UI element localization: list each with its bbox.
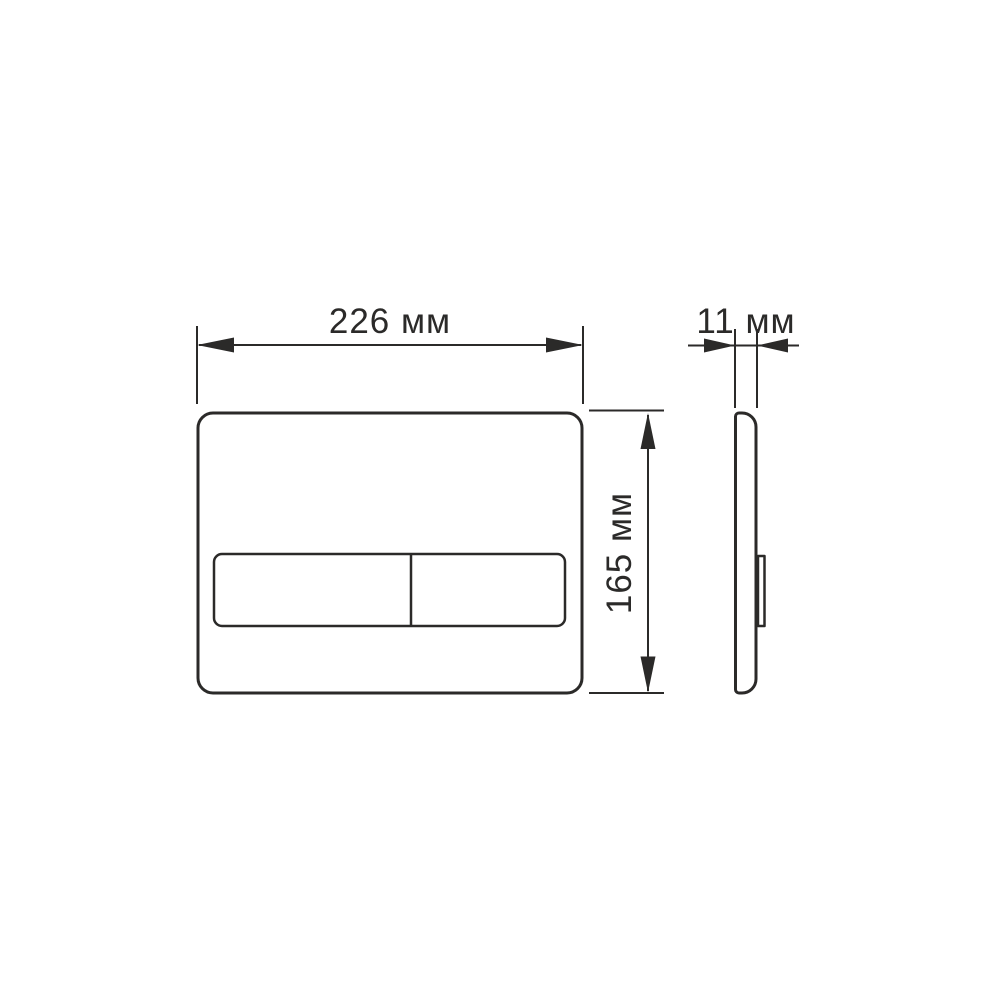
side-view <box>736 413 765 693</box>
width-dimension-label: 226 мм <box>329 302 451 341</box>
height-arrow-top-icon <box>641 413 656 449</box>
height-arrow-bottom-icon <box>641 657 656 693</box>
height-dimension: 165 мм <box>589 411 664 694</box>
drawing-canvas: 226 мм 11 мм 165 мм <box>0 0 1000 1000</box>
width-arrow-right-icon <box>546 338 583 353</box>
plate-side-outline <box>736 413 757 693</box>
buttons-panel-outline <box>214 554 565 626</box>
width-dimension: 226 мм <box>197 302 583 404</box>
technical-drawing: 226 мм 11 мм 165 мм <box>0 0 1000 1000</box>
thickness-dimension: 11 мм <box>688 302 799 408</box>
thickness-dimension-label: 11 мм <box>696 302 795 341</box>
button-side-protrusion-outline <box>758 556 765 626</box>
front-view <box>198 413 582 693</box>
width-arrow-left-icon <box>197 338 234 353</box>
height-dimension-label: 165 мм <box>600 492 639 614</box>
